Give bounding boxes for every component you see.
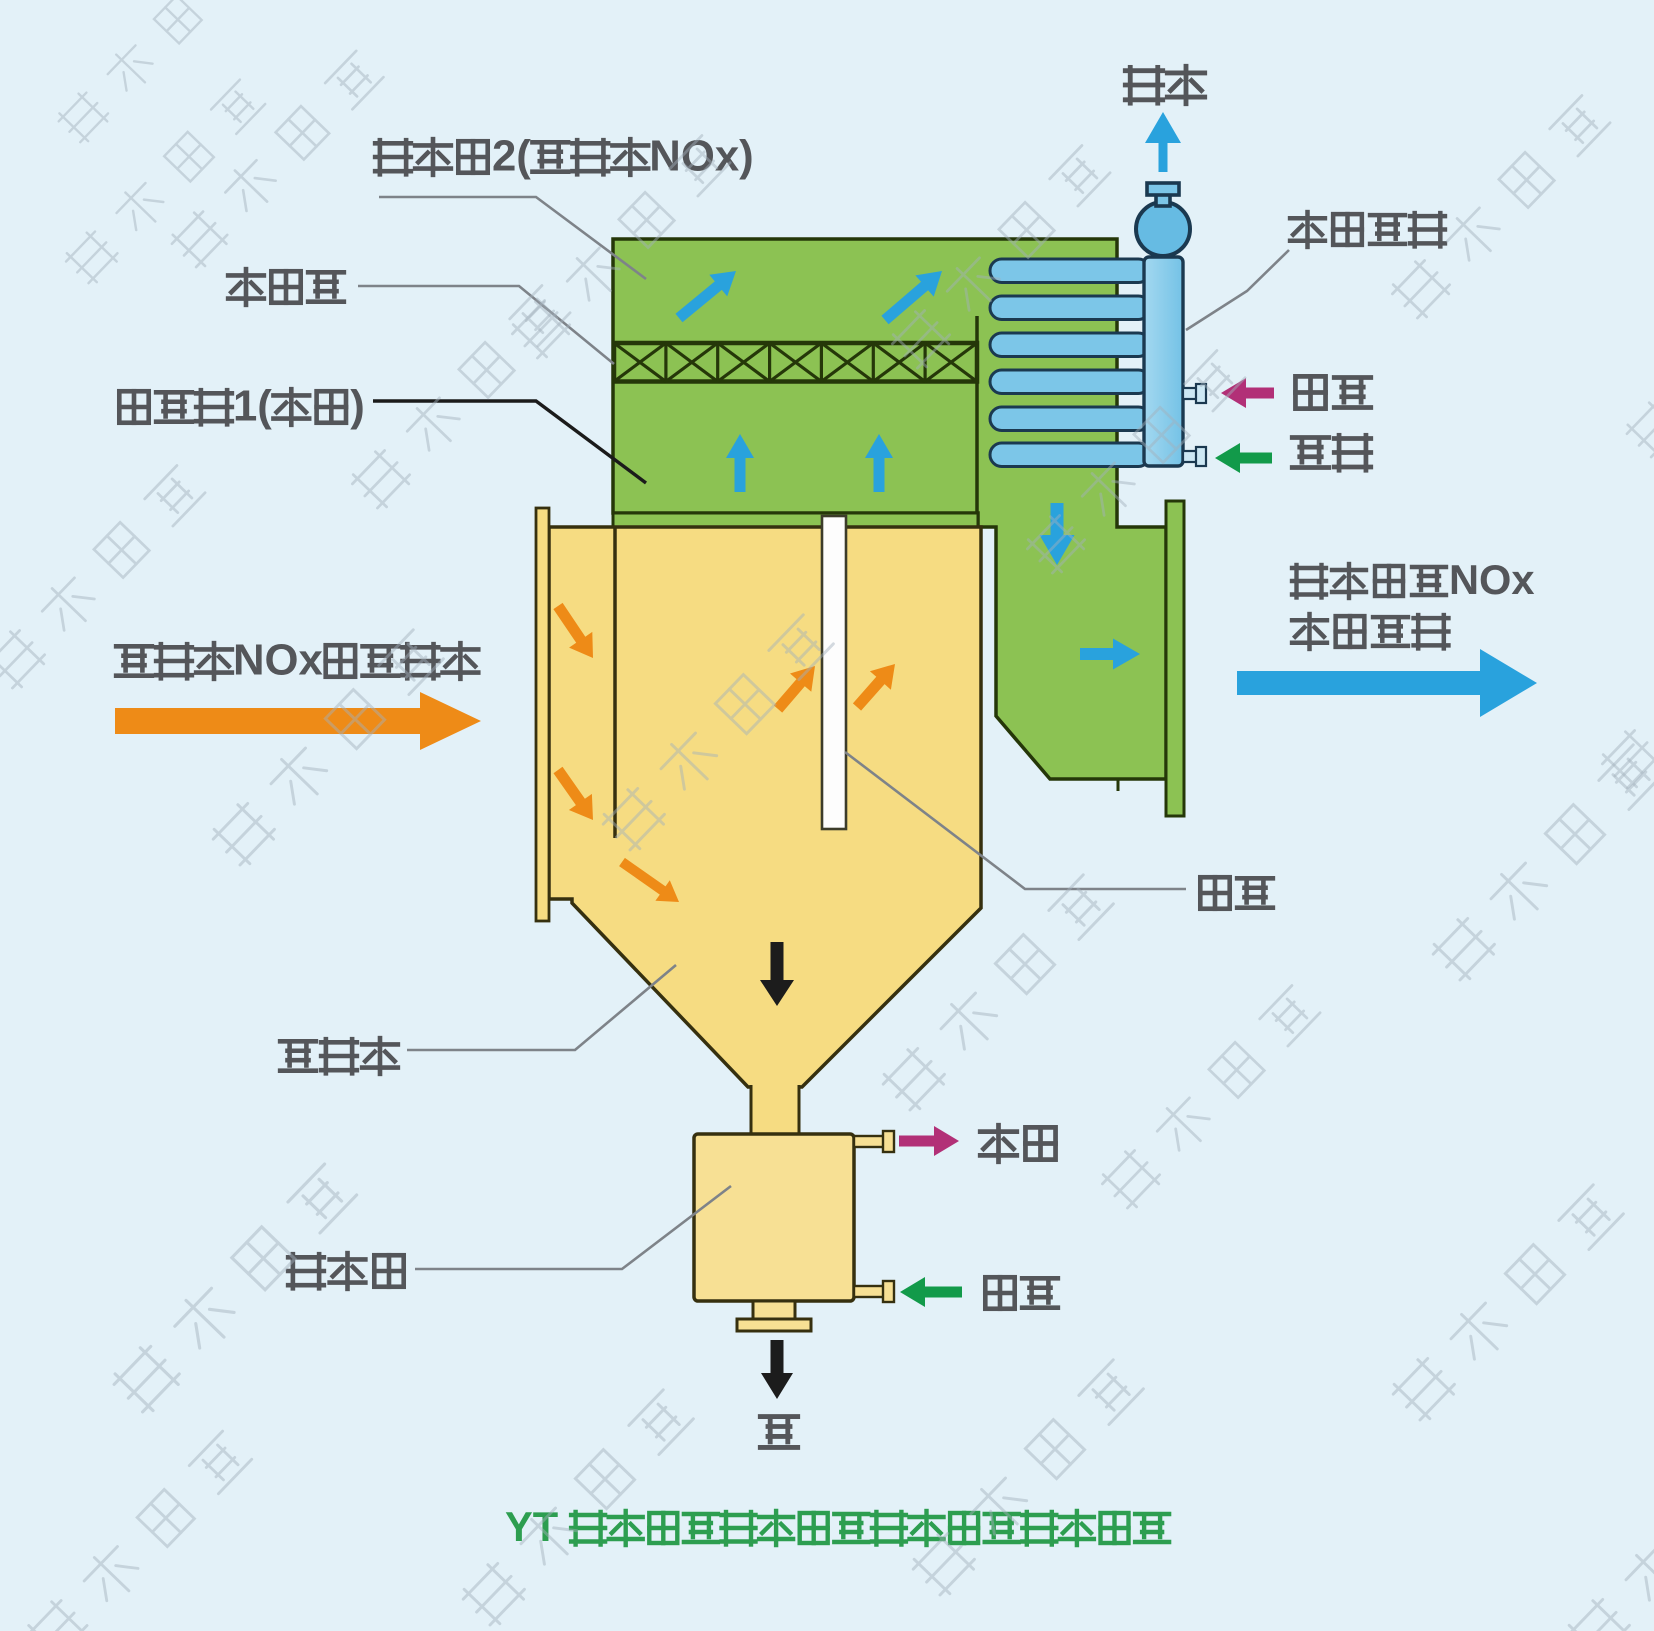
svg-text:YT: YT [505, 1503, 558, 1550]
svg-text:NOx: NOx [233, 635, 323, 684]
svg-text:1(: 1( [233, 381, 272, 430]
svg-text:NOx: NOx [1449, 556, 1535, 603]
svg-text:): ) [350, 381, 365, 430]
svg-text:2(: 2( [492, 131, 531, 180]
